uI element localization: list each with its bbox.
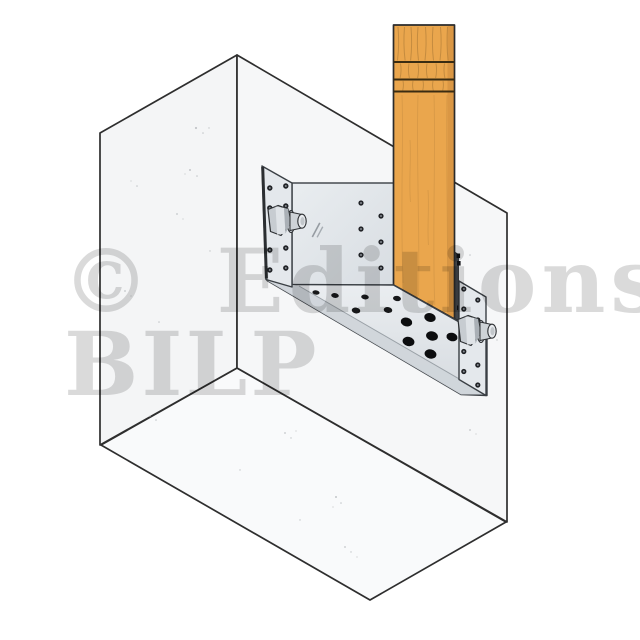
bracket-illustration <box>0 0 640 640</box>
timber-post <box>394 25 455 319</box>
bracket-web-plate <box>292 183 394 285</box>
illustration-canvas: © Editions BILP <box>0 0 640 640</box>
edge-screw-2 <box>457 261 461 266</box>
post-edge-shade <box>448 26 454 318</box>
edge-screw-1 <box>457 254 461 259</box>
